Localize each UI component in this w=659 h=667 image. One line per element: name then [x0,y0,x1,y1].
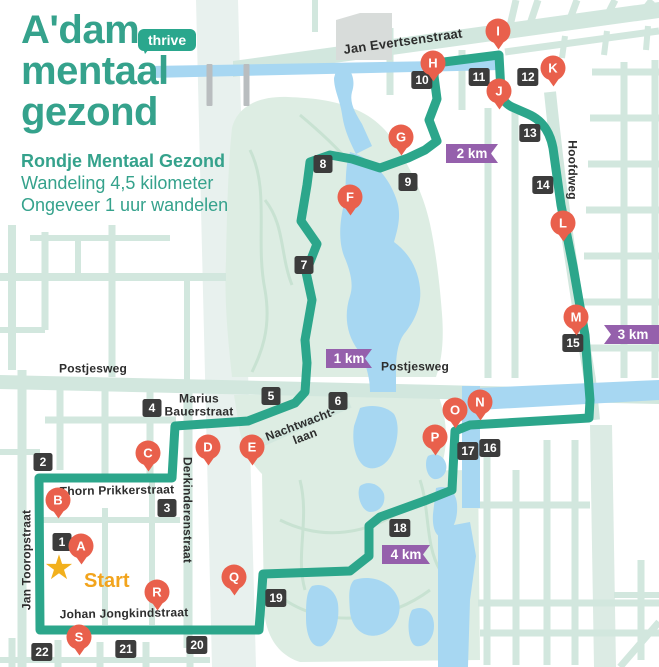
title-line-1: A'dam [21,10,228,51]
title-line-2: mentaal [21,51,228,92]
walking-route-map-flyer: Jan EvertsenstraatHoofdwegPostjeswegPost… [0,0,659,667]
building-shape [336,13,392,60]
start-star-icon: ★ [44,551,74,585]
route-duration: Ongeveer 1 uur wandelen [21,194,228,216]
header: A'dam mentaal gezond thrive Rondje Menta… [21,10,228,216]
start-label: Start [84,570,130,593]
thrive-badge: thrive [138,29,196,51]
route-name: Rondje Mentaal Gezond [21,150,228,172]
route-distance: Wandeling 4,5 kilometer [21,172,228,194]
title-line-3: gezond [21,92,228,133]
route-summary: Rondje Mentaal Gezond Wandeling 4,5 kilo… [21,150,228,216]
